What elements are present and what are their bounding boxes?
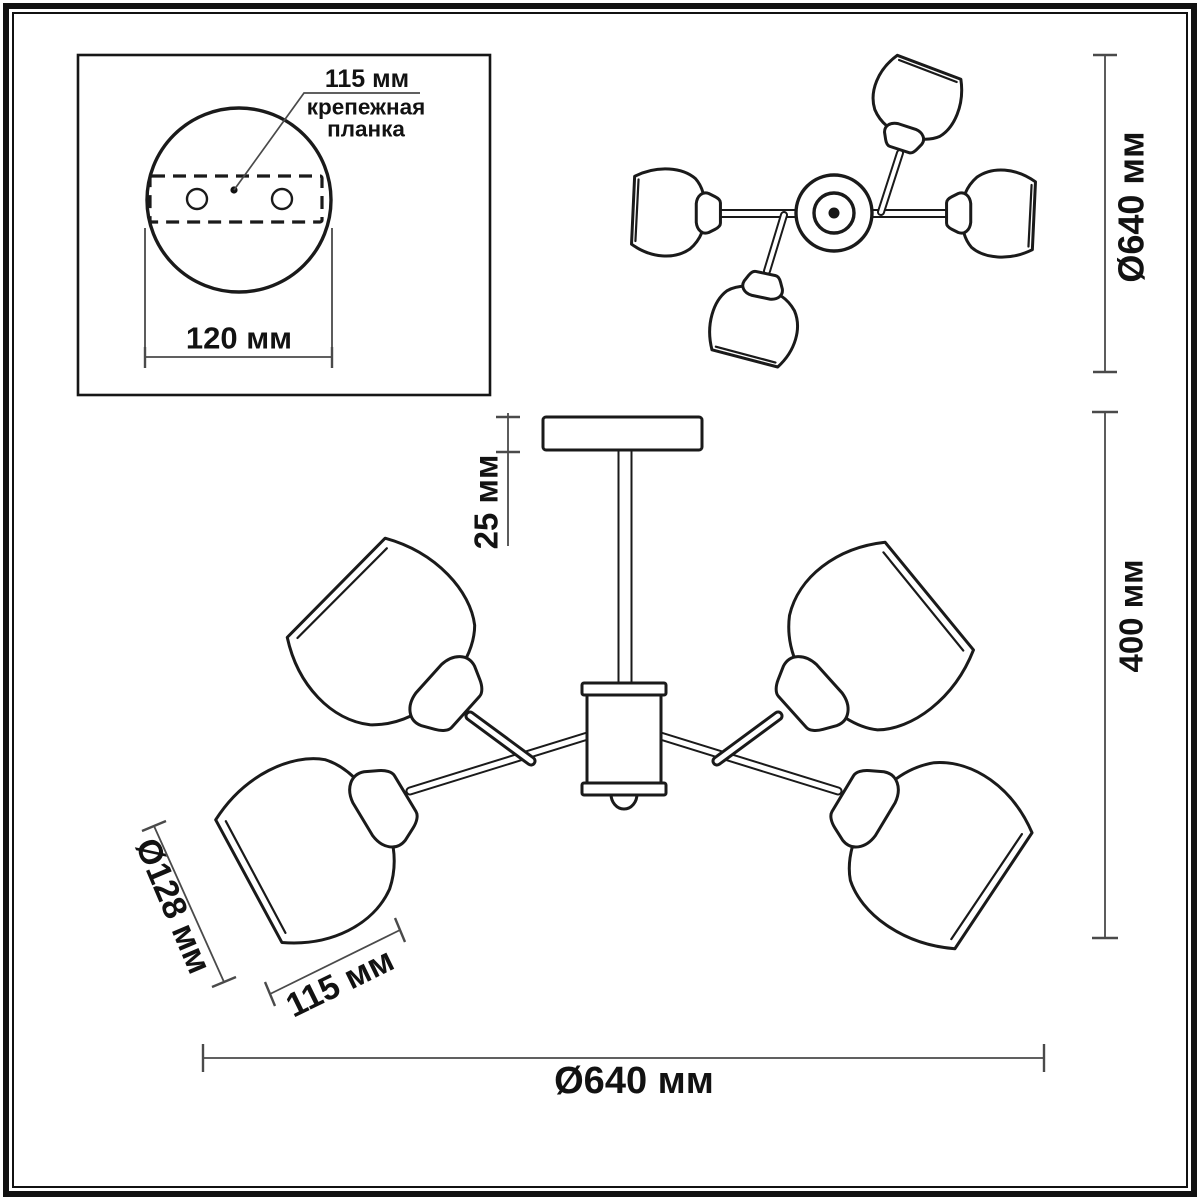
dim-fixture-diameter: Ø640 мм	[203, 1044, 1044, 1102]
dim-label-canopy-height: 25 мм	[468, 455, 505, 550]
dim-fixture-height: 400 мм	[1092, 412, 1150, 938]
dim-label-shade-width: 115 мм	[280, 941, 400, 1025]
mounting-hole-left	[187, 189, 207, 209]
central-body-bottom-cap	[582, 783, 666, 795]
central-body-top-cap	[582, 683, 666, 695]
dim-canopy-height: 25 мм	[468, 413, 521, 549]
lamp-shade-plan-left	[632, 169, 721, 256]
dim-top-view-diameter: Ø640 мм	[1093, 55, 1152, 372]
lamp-shade-plan-bottom	[704, 264, 808, 369]
mounting-hole-right	[272, 189, 292, 209]
mounting-detail-inset: 115 мм крепежная планка 120 мм	[78, 55, 490, 395]
dimensional-drawing-page: 115 мм крепежная планка 120 мм	[0, 0, 1200, 1200]
central-body	[587, 692, 661, 785]
side-view: 25 мм 400 мм Ø128 мм 115 мм	[128, 412, 1150, 1102]
top-view: Ø640 мм	[632, 52, 1152, 372]
lamp-shade-upper-right	[733, 524, 988, 779]
dim-label-canopy-width: 120 мм	[186, 321, 292, 356]
lamp-shade-upper-left	[271, 523, 526, 778]
dim-label-top-diameter: Ø640 мм	[1111, 131, 1152, 282]
mount-bracket-label-line2: планка	[327, 117, 405, 142]
dim-label-fixture-diameter: Ø640 мм	[554, 1060, 714, 1102]
lamp-shade-plan-top	[859, 52, 969, 163]
dim-label-hole-spacing: 115 мм	[325, 65, 409, 93]
dim-shade-diameter: Ø128 мм	[128, 821, 236, 987]
chandelier-dimensional-drawing: 115 мм крепежная планка 120 мм	[0, 0, 1200, 1200]
canopy-circle	[147, 108, 331, 292]
dim-label-fixture-height: 400 мм	[1113, 559, 1150, 672]
hub-center-dot	[829, 208, 840, 219]
ceiling-plate	[543, 417, 702, 450]
dim-label-shade-diameter: Ø128 мм	[128, 833, 219, 979]
lamp-shade-plan-right	[947, 170, 1036, 257]
lamp-shade-lower-left	[202, 716, 450, 963]
lamp-shade-lower-right	[796, 718, 1044, 965]
